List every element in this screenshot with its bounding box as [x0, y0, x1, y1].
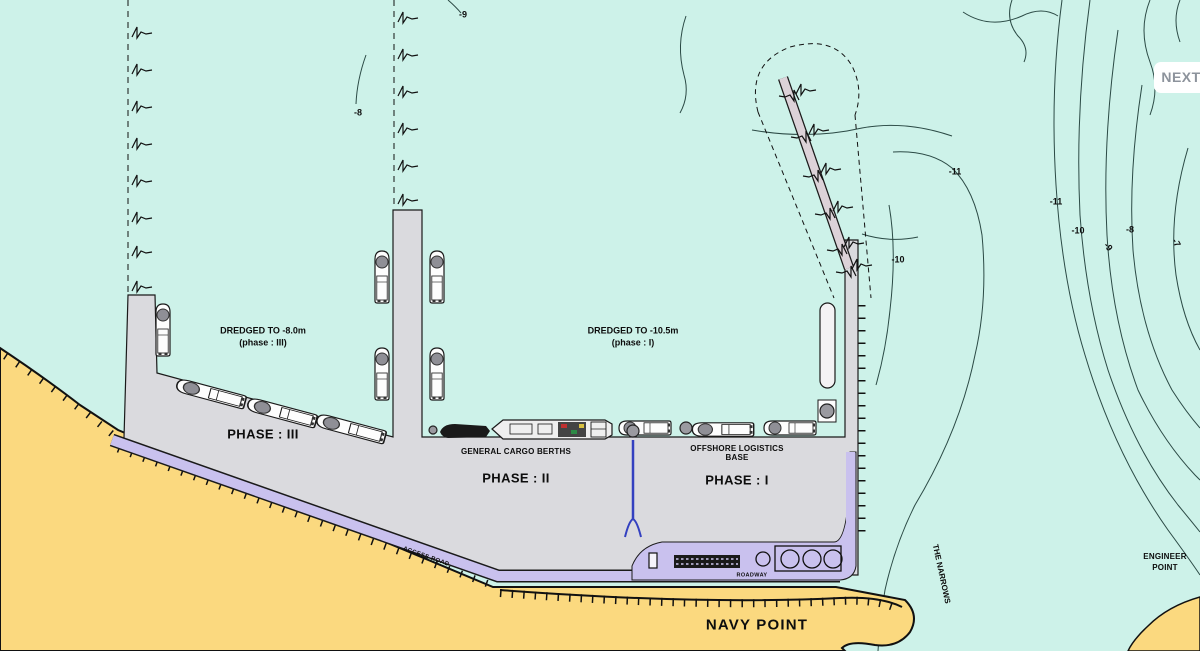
depth-label: -11: [1050, 198, 1063, 207]
general-cargo-berths-label: GENERAL CARGO BERTHS: [461, 448, 571, 456]
vessel: [692, 423, 753, 436]
vessel: [764, 421, 816, 435]
offshore-logistics-label-line1: OFFSHORE LOGISTICS: [690, 445, 783, 453]
phase2-label: PHASE : II: [482, 472, 550, 485]
engineer-point-label-line2: POINT: [1152, 564, 1177, 572]
navy-point-label: NAVY POINT: [706, 618, 808, 633]
building: [649, 553, 657, 568]
next-button[interactable]: NEXT: [1154, 62, 1200, 93]
vessel: [375, 251, 389, 303]
vessel: [375, 348, 389, 400]
vessel: [156, 304, 170, 356]
engineer-point-label-line1: ENGINEER: [1143, 553, 1186, 561]
offshore-logistics-label-line2: BASE: [725, 454, 748, 462]
dredged-note-phase3-line2: (phase : III): [239, 339, 287, 348]
warehouse-hatched: [674, 555, 740, 568]
vessel: [430, 251, 444, 303]
barge-vessel: [820, 303, 835, 388]
depth-label: -9: [459, 11, 467, 20]
phase3-label: PHASE : III: [227, 428, 299, 441]
tug-vessel: [440, 424, 490, 438]
dredged-note-phase3-line1: DREDGED TO -8.0m: [220, 327, 306, 336]
roadway-label: ROADWAY: [736, 573, 767, 579]
depth-label: -11: [949, 168, 962, 177]
dredged-note-phase1-line2: (phase : I): [612, 339, 655, 348]
port-plan-viewer: DREDGED TO -8.0m (phase : III) DREDGED T…: [0, 0, 1200, 651]
depth-label: -8: [354, 109, 362, 118]
phase1-label: PHASE : I: [705, 474, 769, 487]
cargo-ship: [492, 420, 612, 439]
depth-label: -8: [1126, 226, 1134, 235]
depth-label: -10: [1071, 227, 1084, 236]
dredged-note-phase1-line1: DREDGED TO -10.5m: [588, 327, 679, 336]
vessel: [430, 348, 444, 400]
depth-label: -10: [891, 256, 904, 265]
